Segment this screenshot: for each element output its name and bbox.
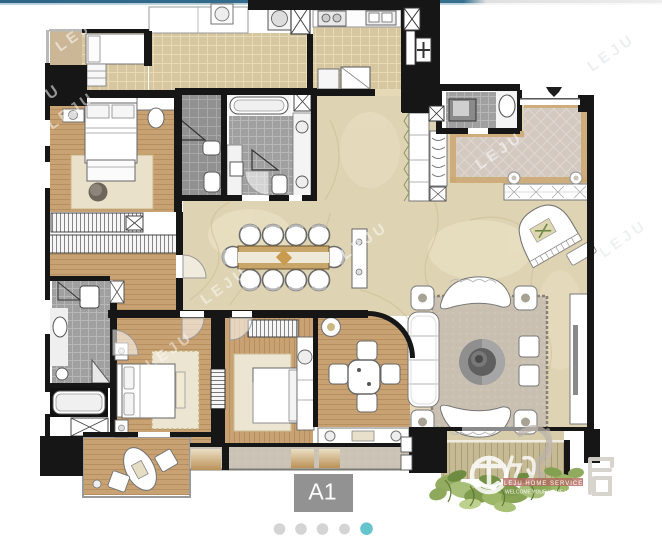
svg-text:A1: A1 [308,479,336,505]
svg-text:WELCOME YOUR HOME HERE: WELCOME YOUR HOME HERE [505,490,579,496]
svg-text:LEJU HOME SERVICE: LEJU HOME SERVICE [504,481,583,487]
